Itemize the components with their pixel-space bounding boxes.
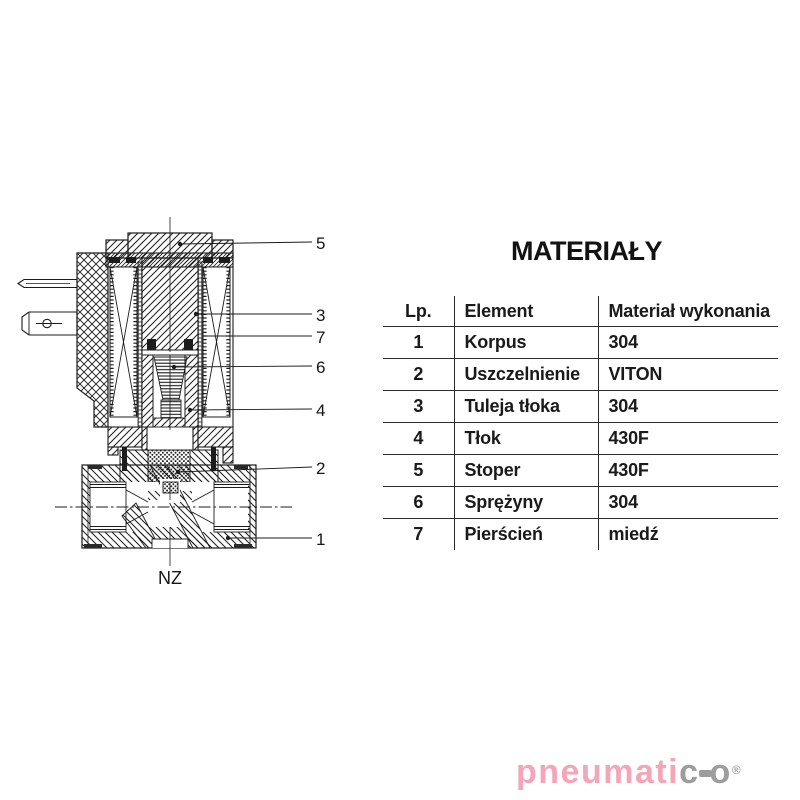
logo-dash-icon bbox=[699, 770, 712, 777]
callout-label-7: 7 bbox=[316, 328, 325, 347]
connector-pins bbox=[18, 280, 77, 336]
pneumatico-logo: pneumatico® bbox=[516, 755, 741, 789]
callout-label-5: 5 bbox=[316, 234, 325, 253]
cell-material: VITON bbox=[598, 359, 778, 391]
cell-material: miedź bbox=[598, 519, 778, 551]
cell-lp: 4 bbox=[383, 423, 454, 455]
copper-ring-right bbox=[184, 339, 193, 350]
cell-material: 304 bbox=[598, 327, 778, 359]
coil-encapsulation bbox=[77, 253, 108, 427]
cell-element: Korpus bbox=[454, 327, 598, 359]
cell-lp: 3 bbox=[383, 391, 454, 423]
cell-element: Uszczelnienie bbox=[454, 359, 598, 391]
header-lp: Lp. bbox=[383, 296, 454, 327]
callout-label-2: 2 bbox=[316, 459, 325, 478]
cell-element: Tłok bbox=[454, 423, 598, 455]
cell-material: 430F bbox=[598, 423, 778, 455]
cell-lp: 1 bbox=[383, 327, 454, 359]
coil-winding-left bbox=[110, 267, 137, 417]
seat-disc bbox=[163, 482, 178, 493]
callout-label-1: 1 bbox=[316, 530, 325, 549]
stopper-part bbox=[106, 233, 233, 258]
cell-material: 304 bbox=[598, 391, 778, 423]
page-title: MATERIAŁY bbox=[511, 238, 662, 265]
callout-label-3: 3 bbox=[316, 306, 325, 325]
cell-lp: 6 bbox=[383, 487, 454, 519]
table-row: 7 Pierścień miedź bbox=[383, 519, 778, 551]
coil-winding-right bbox=[203, 253, 233, 427]
logo-text-pink: pneumati bbox=[516, 753, 679, 791]
cell-element: Pierścień bbox=[454, 519, 598, 551]
table-row: 2 Uszczelnienie VITON bbox=[383, 359, 778, 391]
logo-text-o: o bbox=[710, 753, 732, 791]
header-material: Materiał wykonania bbox=[598, 296, 778, 327]
logo-text-c: c bbox=[679, 753, 699, 791]
cell-material: 430F bbox=[598, 455, 778, 487]
table-row: 1 Korpus 304 bbox=[383, 327, 778, 359]
cell-element: Sprężyny bbox=[454, 487, 598, 519]
table-row: 6 Sprężyny 304 bbox=[383, 487, 778, 519]
table-header-row: Lp. Element Materiał wykonania bbox=[383, 296, 778, 327]
table-row: 5 Stoper 430F bbox=[383, 455, 778, 487]
cell-element: Stoper bbox=[454, 455, 598, 487]
cell-lp: 7 bbox=[383, 519, 454, 551]
cell-lp: 2 bbox=[383, 359, 454, 391]
callout-label-6: 6 bbox=[316, 358, 325, 377]
copper-ring-left bbox=[147, 339, 156, 350]
valve-body bbox=[82, 465, 256, 548]
cell-material: 304 bbox=[598, 487, 778, 519]
cell-element: Tuleja tłoka bbox=[454, 391, 598, 423]
table-row: 4 Tłok 430F bbox=[383, 423, 778, 455]
header-element: Element bbox=[454, 296, 598, 327]
spring-part bbox=[154, 357, 187, 418]
table-row: 3 Tuleja tłoka 304 bbox=[383, 391, 778, 423]
materials-table: Lp. Element Materiał wykonania 1 Korpus … bbox=[383, 296, 778, 550]
registered-trademark-icon: ® bbox=[732, 753, 741, 787]
cell-lp: 5 bbox=[383, 455, 454, 487]
callout-label-4: 4 bbox=[316, 401, 325, 420]
nz-label: NZ bbox=[158, 568, 182, 588]
